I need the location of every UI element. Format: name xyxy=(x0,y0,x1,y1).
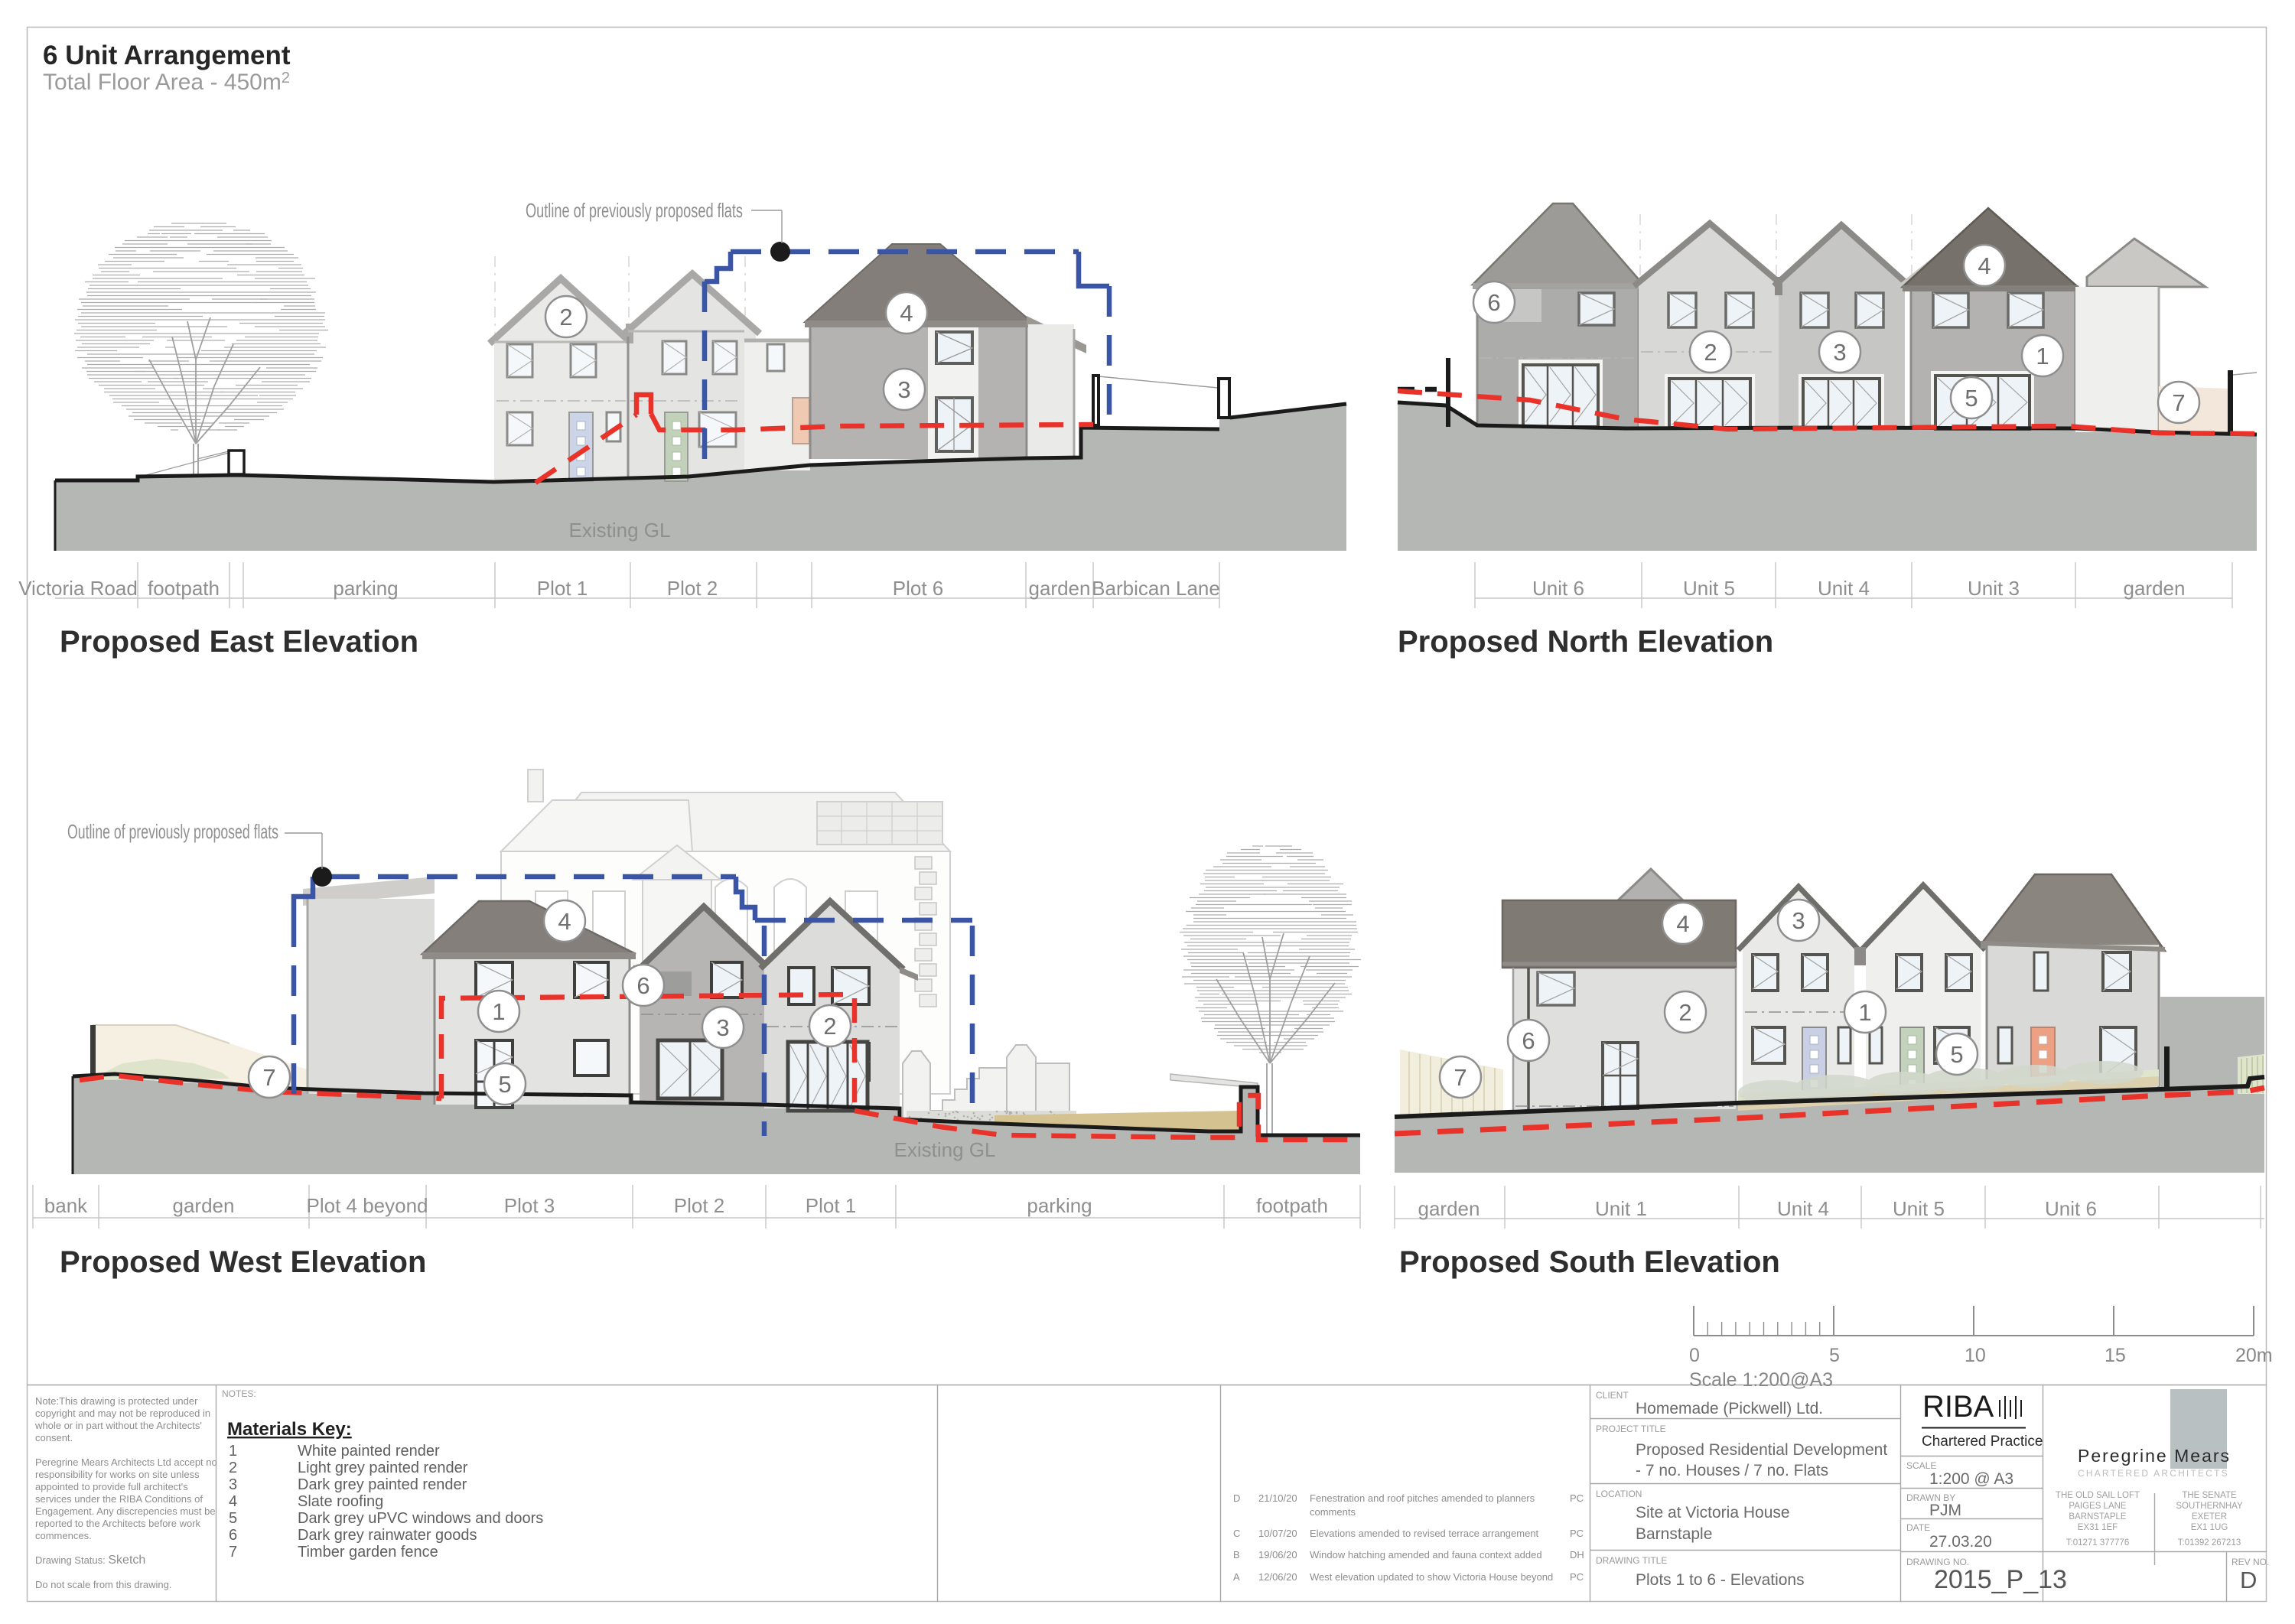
svg-text:Site at Victoria House: Site at Victoria House xyxy=(1636,1504,1790,1521)
svg-text:Unit 5: Unit 5 xyxy=(1893,1197,1945,1220)
svg-text:commences.: commences. xyxy=(35,1530,92,1541)
svg-text:3: 3 xyxy=(897,376,910,403)
svg-text:EX31 1EF: EX31 1EF xyxy=(2078,1523,2118,1532)
svg-text:Drawing Status: Sketch: Drawing Status: Sketch xyxy=(35,1554,145,1567)
svg-text:Dark grey uPVC windows and doo: Dark grey uPVC windows and doors xyxy=(298,1510,543,1527)
svg-text:Homemade (Pickwell) Ltd.: Homemade (Pickwell) Ltd. xyxy=(1636,1400,1823,1417)
svg-text:parking: parking xyxy=(1027,1194,1092,1217)
svg-text:Barnstaple: Barnstaple xyxy=(1636,1525,1712,1543)
svg-text:DATE: DATE xyxy=(1906,1522,1930,1533)
svg-text:1: 1 xyxy=(492,998,505,1025)
svg-text:Plot 2: Plot 2 xyxy=(674,1194,725,1217)
svg-text:Slate roofing: Slate roofing xyxy=(298,1493,383,1510)
svg-text:CLIENT: CLIENT xyxy=(1596,1390,1629,1401)
svg-text:5: 5 xyxy=(1965,385,1978,412)
svg-text:5: 5 xyxy=(498,1071,511,1098)
svg-text:copyright and may not be repro: copyright and may not be reproduced in xyxy=(35,1408,210,1419)
svg-text:Timber garden fence: Timber garden fence xyxy=(298,1544,438,1561)
svg-text:21/10/20: 21/10/20 xyxy=(1258,1492,1297,1504)
svg-text:footpath: footpath xyxy=(1256,1194,1328,1217)
svg-text:Plot 1: Plot 1 xyxy=(537,577,588,600)
svg-text:appointed to provide full arch: appointed to provide full architect's xyxy=(35,1481,188,1492)
svg-text:0: 0 xyxy=(1689,1345,1700,1366)
svg-text:Unit 1: Unit 1 xyxy=(1595,1197,1647,1220)
svg-text:bank: bank xyxy=(44,1194,88,1217)
svg-text:Elevations amended to revised: Elevations amended to revised terrace ar… xyxy=(1310,1528,1539,1539)
svg-text:Existing GL: Existing GL xyxy=(569,519,671,542)
svg-text:27.03.20: 27.03.20 xyxy=(1929,1533,1992,1551)
svg-text:DRAWING TITLE: DRAWING TITLE xyxy=(1596,1555,1667,1566)
svg-text:THE OLD SAIL LOFT: THE OLD SAIL LOFT xyxy=(2056,1491,2140,1500)
svg-text:1:200 @ A3: 1:200 @ A3 xyxy=(1929,1470,2013,1488)
svg-text:Chartered Practice: Chartered Practice xyxy=(1922,1434,2043,1450)
svg-text:Proposed South Elevation: Proposed South Elevation xyxy=(1399,1245,1780,1279)
svg-text:Plot 6: Plot 6 xyxy=(893,577,944,600)
svg-text:1: 1 xyxy=(2036,343,2049,369)
svg-text:7: 7 xyxy=(1453,1064,1467,1091)
svg-text:Light grey painted render: Light grey painted render xyxy=(298,1460,468,1476)
svg-text:Outline of previously proposed: Outline of previously proposed flats xyxy=(67,820,278,843)
svg-text:Fenestration and roof pitches: Fenestration and roof pitches amended to… xyxy=(1310,1492,1535,1504)
svg-text:3: 3 xyxy=(1792,907,1805,934)
svg-text:EX1 1UG: EX1 1UG xyxy=(2191,1523,2228,1532)
svg-text:2: 2 xyxy=(559,304,572,330)
svg-text:2: 2 xyxy=(229,1460,237,1476)
svg-text:consent.: consent. xyxy=(35,1432,73,1443)
svg-text:20m: 20m xyxy=(2235,1345,2273,1366)
svg-text:A: A xyxy=(1233,1571,1240,1583)
svg-text:Do not scale from this drawing: Do not scale from this drawing. xyxy=(35,1579,171,1590)
svg-text:Unit 6: Unit 6 xyxy=(2045,1197,2097,1220)
svg-text:SOUTHERNHAY: SOUTHERNHAY xyxy=(2176,1502,2243,1511)
svg-text:B: B xyxy=(1233,1549,1240,1561)
svg-text:Barbican Lane: Barbican Lane xyxy=(1092,577,1220,600)
svg-text:6 Unit Arrangement: 6 Unit Arrangement xyxy=(43,41,291,70)
svg-text:Proposed Residential Developme: Proposed Residential Development xyxy=(1636,1441,1887,1459)
svg-text:3: 3 xyxy=(716,1014,729,1041)
svg-text:7: 7 xyxy=(2172,389,2185,416)
svg-text:4: 4 xyxy=(900,300,913,327)
svg-text:Proposed North Elevation: Proposed North Elevation xyxy=(1398,625,1773,659)
svg-text:garden: garden xyxy=(2124,577,2186,600)
svg-text:Proposed East Elevation: Proposed East Elevation xyxy=(60,625,418,659)
svg-text:West elevation updated to show: West elevation updated to show Victoria … xyxy=(1310,1571,1553,1583)
svg-text:Unit 4: Unit 4 xyxy=(1818,577,1870,600)
svg-text:responsibility for works on si: responsibility for works on site unless xyxy=(35,1469,200,1480)
svg-text:garden: garden xyxy=(1418,1197,1480,1220)
svg-text:Dark grey painted render: Dark grey painted render xyxy=(298,1476,467,1493)
svg-text:10/07/20: 10/07/20 xyxy=(1258,1528,1297,1539)
svg-text:comments: comments xyxy=(1310,1506,1356,1518)
svg-text:White painted render: White painted render xyxy=(298,1443,440,1460)
svg-text:Existing GL: Existing GL xyxy=(894,1138,996,1161)
svg-text:NOTES:: NOTES: xyxy=(222,1388,256,1399)
svg-text:PC: PC xyxy=(1570,1492,1584,1504)
svg-text:C: C xyxy=(1233,1528,1240,1539)
svg-text:1: 1 xyxy=(1858,999,1871,1026)
svg-text:Unit 3: Unit 3 xyxy=(1968,577,2020,600)
svg-text:Peregrine Mears: Peregrine Mears xyxy=(2078,1446,2231,1466)
svg-text:Proposed West Elevation: Proposed West Elevation xyxy=(60,1245,426,1279)
svg-text:CHARTERED ARCHITECTS: CHARTERED ARCHITECTS xyxy=(2078,1468,2229,1479)
svg-text:Victoria Road: Victoria Road xyxy=(18,577,138,600)
svg-text:Total Floor Area - 450m2: Total Floor Area - 450m2 xyxy=(43,70,290,95)
svg-text:PAIGES LANE: PAIGES LANE xyxy=(2069,1502,2127,1511)
svg-text:Unit 5: Unit 5 xyxy=(1683,577,1735,600)
svg-text:4: 4 xyxy=(229,1493,237,1510)
svg-text:Plot 3: Plot 3 xyxy=(504,1194,555,1217)
svg-text:Window hatching amended and fa: Window hatching amended and fauna contex… xyxy=(1310,1549,1542,1561)
svg-text:19/06/20: 19/06/20 xyxy=(1258,1549,1297,1561)
svg-text:10: 10 xyxy=(1965,1345,1986,1366)
svg-text:6: 6 xyxy=(636,972,649,999)
svg-text:15: 15 xyxy=(2105,1345,2126,1366)
svg-text:5: 5 xyxy=(1829,1345,1840,1366)
svg-text:THE SENATE: THE SENATE xyxy=(2182,1491,2237,1500)
svg-text:garden: garden xyxy=(173,1194,235,1217)
svg-text:Plots 1 to 6 - Elevations: Plots 1 to 6 - Elevations xyxy=(1636,1571,1805,1589)
svg-text:- 7 no. Houses / 7 no. Flats: - 7 no. Houses / 7 no. Flats xyxy=(1636,1462,1828,1479)
svg-text:parking: parking xyxy=(333,577,398,600)
svg-text:D: D xyxy=(1233,1492,1240,1504)
svg-text:whole or in part without the A: whole or in part without the Architects' xyxy=(34,1420,202,1431)
svg-text:Engagement. Any discrepencies: Engagement. Any discrepencies must be xyxy=(35,1505,216,1517)
svg-text:RIBA: RIBA xyxy=(1922,1390,1994,1424)
svg-text:D: D xyxy=(2240,1567,2257,1593)
svg-text:T:01392 267213: T:01392 267213 xyxy=(2178,1538,2241,1548)
svg-text:BARNSTAPLE: BARNSTAPLE xyxy=(2069,1512,2127,1521)
svg-text:2: 2 xyxy=(1704,339,1717,366)
svg-text:REV NO.: REV NO. xyxy=(2232,1557,2269,1567)
svg-text:Unit 6: Unit 6 xyxy=(1532,577,1584,600)
svg-text:7: 7 xyxy=(262,1064,275,1091)
svg-text:7: 7 xyxy=(229,1544,237,1561)
svg-text:EXETER: EXETER xyxy=(2192,1512,2227,1521)
svg-text:Plot 4 beyond: Plot 4 beyond xyxy=(306,1194,428,1217)
svg-text:SCALE: SCALE xyxy=(1906,1460,1936,1471)
svg-text:Scale 1:200@A3: Scale 1:200@A3 xyxy=(1689,1369,1833,1391)
svg-text:2: 2 xyxy=(1678,999,1691,1026)
svg-text:reported to the Architects bef: reported to the Architects before work xyxy=(35,1518,201,1529)
svg-text:Peregrine Mears Architects Ltd: Peregrine Mears Architects Ltd accept no xyxy=(35,1456,217,1468)
svg-text:T:01271 377776: T:01271 377776 xyxy=(2066,1538,2130,1548)
svg-text:footpath: footpath xyxy=(148,577,220,600)
svg-text:Note:This drawing is protected: Note:This drawing is protected under xyxy=(35,1395,198,1407)
svg-text:6: 6 xyxy=(1522,1027,1535,1054)
svg-text:Dark grey rainwater goods: Dark grey rainwater goods xyxy=(298,1527,477,1544)
svg-text:Outline of previously proposed: Outline of previously proposed flats xyxy=(526,199,743,222)
svg-text:Plot 1: Plot 1 xyxy=(806,1194,857,1217)
svg-text:DH: DH xyxy=(1570,1549,1584,1561)
svg-text:3: 3 xyxy=(1833,339,1846,366)
svg-text:garden: garden xyxy=(1029,577,1091,600)
svg-text:LOCATION: LOCATION xyxy=(1596,1489,1642,1499)
svg-text:Unit 4: Unit 4 xyxy=(1777,1197,1829,1220)
svg-text:6: 6 xyxy=(1487,289,1500,316)
svg-text:1: 1 xyxy=(229,1443,237,1460)
svg-text:6: 6 xyxy=(229,1527,237,1544)
svg-text:4: 4 xyxy=(558,908,571,935)
svg-text:3: 3 xyxy=(229,1476,237,1493)
svg-text:12/06/20: 12/06/20 xyxy=(1258,1571,1297,1583)
svg-text:2015_P_13: 2015_P_13 xyxy=(1934,1565,2067,1594)
svg-text:4: 4 xyxy=(1676,910,1689,937)
svg-text:PC: PC xyxy=(1570,1528,1584,1539)
svg-text:PC: PC xyxy=(1570,1571,1584,1583)
svg-text:services under the RIBA Condit: services under the RIBA Conditions of xyxy=(35,1493,203,1505)
svg-text:5: 5 xyxy=(1950,1041,1963,1068)
svg-text:Materials Key:: Materials Key: xyxy=(227,1419,352,1440)
svg-text:5: 5 xyxy=(229,1510,237,1527)
svg-text:Plot 2: Plot 2 xyxy=(667,577,718,600)
svg-text:2: 2 xyxy=(823,1013,836,1040)
svg-text:4: 4 xyxy=(1978,252,1991,279)
svg-text:PROJECT TITLE: PROJECT TITLE xyxy=(1596,1424,1666,1434)
svg-text:PJM: PJM xyxy=(1929,1502,1961,1519)
